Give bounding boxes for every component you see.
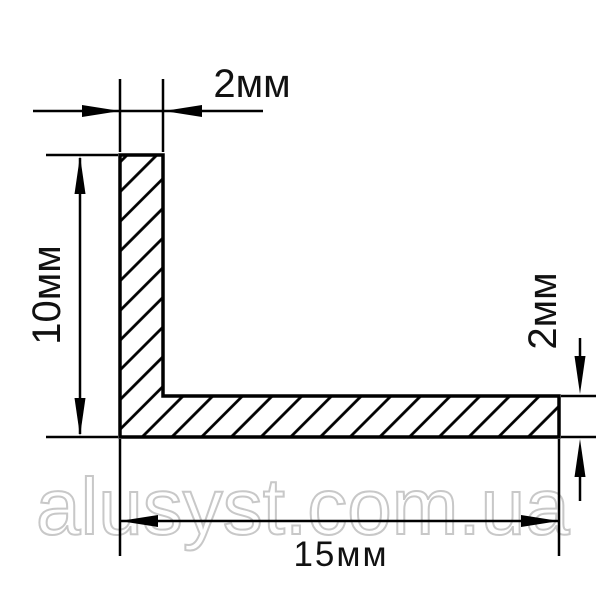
label-left-height: 10мм xyxy=(25,235,69,355)
label-bottom-width: 15мм xyxy=(271,533,411,577)
dimension-right-thickness xyxy=(561,338,596,501)
arrowhead-right-icon xyxy=(521,515,559,527)
arrowhead-down-icon xyxy=(575,356,586,394)
drawing-canvas: alusyst.com.ua xyxy=(0,0,600,600)
label-top-thickness: 2мм xyxy=(192,62,312,106)
arrowhead-left-icon xyxy=(164,105,202,117)
label-right-thickness: 2мм xyxy=(521,266,565,356)
l-profile-cross-section xyxy=(120,155,559,437)
arrowhead-left-icon xyxy=(120,515,158,527)
arrowhead-right-icon xyxy=(82,105,120,117)
arrowhead-up-icon xyxy=(575,439,586,477)
arrowhead-up-icon xyxy=(75,156,86,194)
arrowhead-down-icon xyxy=(75,398,86,436)
